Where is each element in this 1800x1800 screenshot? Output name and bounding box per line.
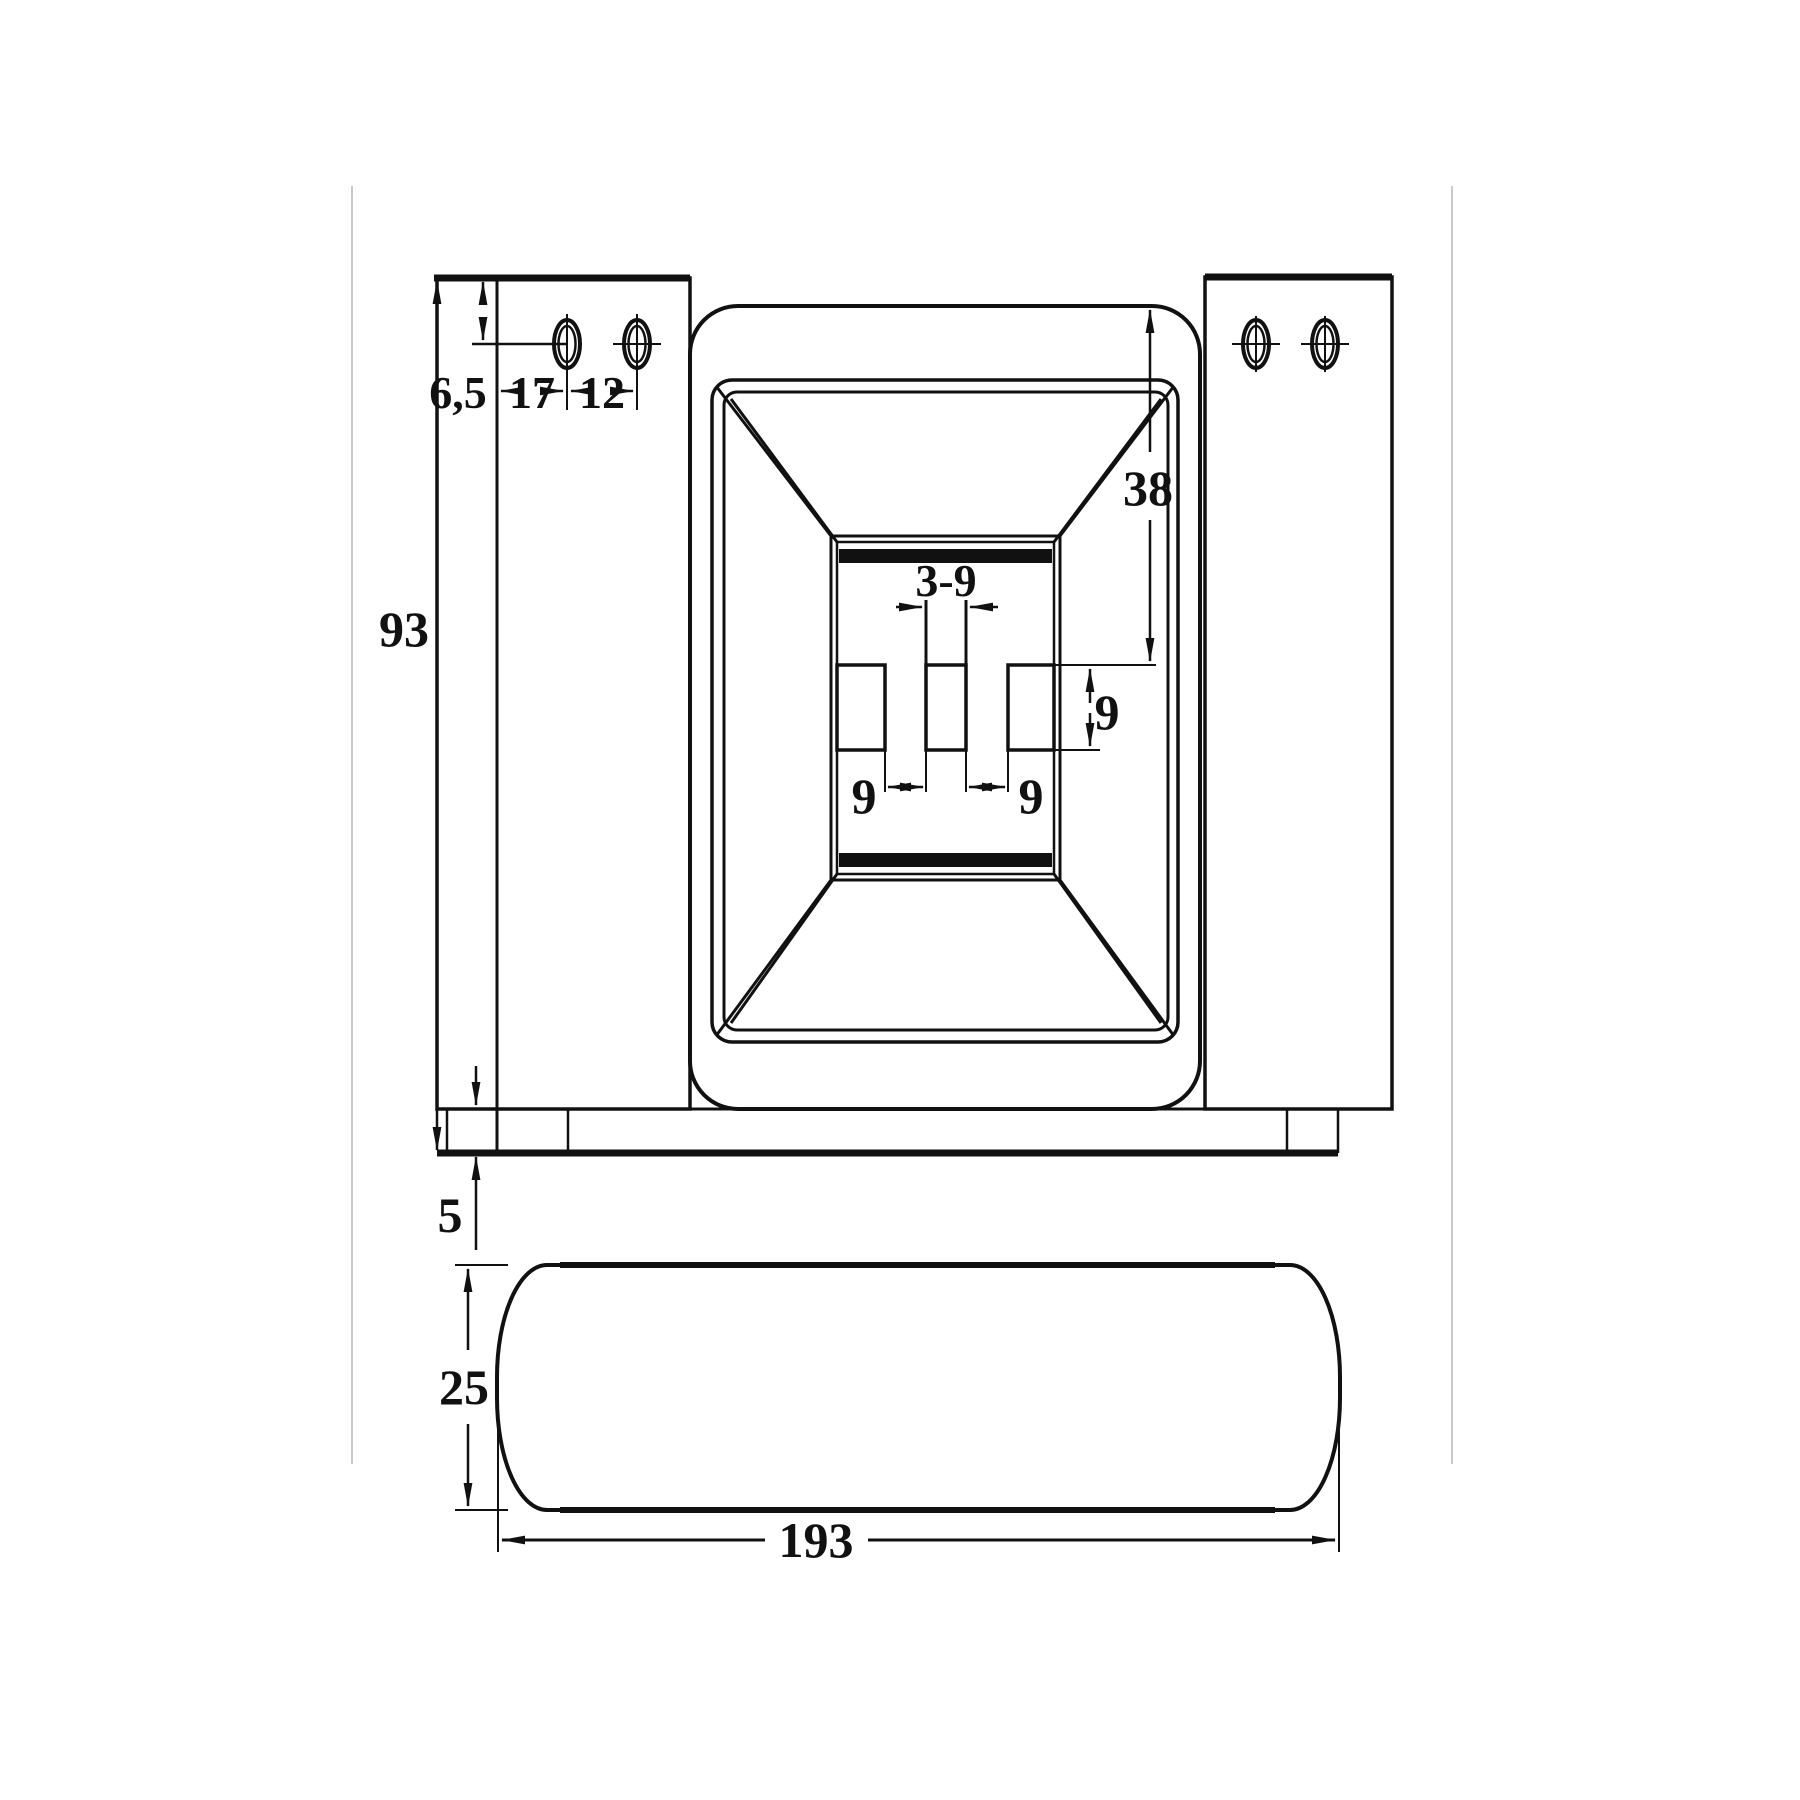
dim-slot-gap-right: 9 (1019, 768, 1044, 824)
base-plate (437, 1109, 1338, 1153)
dim-slot-gap-left: 9 (852, 768, 877, 824)
dim-slot-band-height: 9 (1095, 684, 1120, 740)
dim-center-slot: 3-9 (915, 555, 976, 606)
technical-drawing-page: 93 6,5 17 12 38 9 (0, 0, 1800, 1800)
dim-recess-depth: 38 (1123, 460, 1173, 516)
right-mounting-plate (1205, 277, 1392, 1109)
bottom-profile (497, 1265, 1340, 1510)
dim-overall-width: 193 (779, 1512, 854, 1568)
dim-hole-inset: 17 (509, 367, 555, 418)
bracket-drawing-canvas: 93 6,5 17 12 38 9 (0, 0, 1800, 1800)
dim-base-thickness: 5 (438, 1187, 463, 1243)
dim-profile-thickness: 25 (439, 1359, 489, 1415)
dim-hole-offset-top: 6,5 (429, 367, 487, 418)
recess-bottom-bar (839, 853, 1052, 867)
dim-hole-pitch: 12 (579, 367, 625, 418)
dim-overall-height: 93 (379, 601, 429, 657)
front-view: 93 6,5 17 12 38 9 (379, 277, 1392, 1250)
bottom-view: 25 193 (439, 1265, 1340, 1568)
